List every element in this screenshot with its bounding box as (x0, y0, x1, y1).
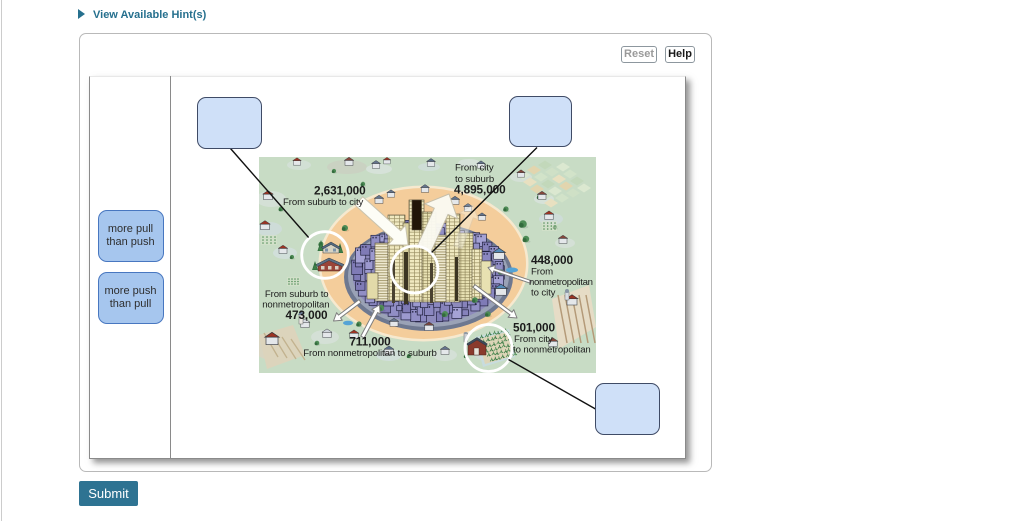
svg-text:From: From (531, 267, 553, 278)
svg-text:473,000: 473,000 (286, 308, 328, 322)
svg-text:448,000: 448,000 (531, 253, 573, 267)
svg-text:From city: From city (455, 163, 494, 174)
svg-text:711,000: 711,000 (349, 335, 391, 349)
svg-text:501,000: 501,000 (513, 321, 555, 335)
svg-text:From nonmetropolitan to suburb: From nonmetropolitan to suburb (303, 348, 437, 359)
svg-text:2,631,000: 2,631,000 (314, 184, 366, 198)
svg-text:From suburb to: From suburb to (265, 289, 329, 300)
svg-text:From city: From city (514, 334, 553, 345)
svg-text:to nonmetropolitan: to nonmetropolitan (513, 345, 591, 356)
svg-text:From suburb to city: From suburb to city (283, 197, 364, 208)
svg-text:4,895,000: 4,895,000 (454, 183, 506, 197)
svg-text:nonmetropolitan: nonmetropolitan (529, 277, 593, 288)
svg-text:to city: to city (531, 288, 556, 299)
